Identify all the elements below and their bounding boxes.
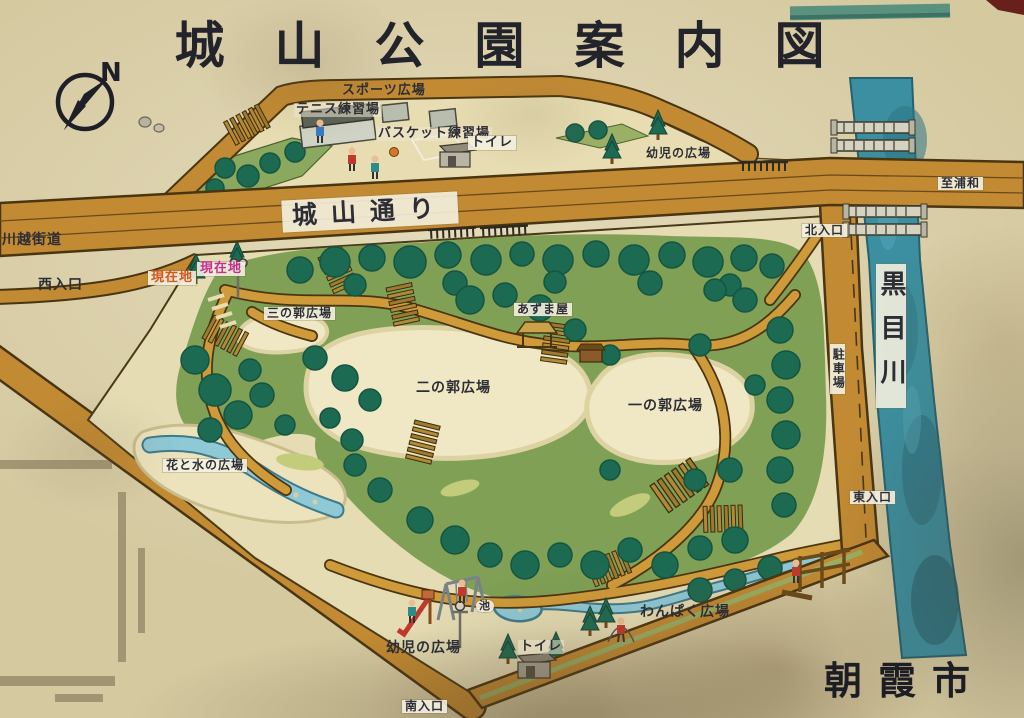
- label-tennis-practice: テニス練習場: [294, 103, 382, 117]
- faded-tape-mark: [0, 460, 112, 469]
- compass-north-label: N: [100, 58, 122, 88]
- label-current-location-1: 現在地: [148, 271, 196, 285]
- label-pond: 池: [476, 600, 494, 612]
- label-kurome-river: 黒目川: [876, 264, 906, 408]
- small-shrine: [577, 344, 605, 362]
- label-toilet-south: トイレ: [518, 640, 564, 654]
- park-guide-sign: 城山公園案内図 N スポーツ広場 テニス練習場 バスケット練習場 トイレ 幼児の…: [0, 0, 1024, 718]
- label-kawagoe-highway: 川越街道: [2, 233, 62, 248]
- label-azumaya: あずま屋: [514, 303, 572, 316]
- label-to-urawa: 至浦和: [938, 177, 983, 190]
- map-graphic: [0, 0, 1024, 718]
- label-toilet-north: トイレ: [468, 136, 516, 150]
- label-current-location-2: 現在地: [197, 262, 245, 276]
- label-toddlers-plaza-south: 幼児の広場: [386, 641, 461, 656]
- label-flower-water-plaza: 花と水の広場: [163, 459, 247, 472]
- faded-tape-mark: [0, 676, 115, 686]
- label-south-entrance: 南入口: [402, 700, 447, 713]
- label-wanpaku-plaza: わんぱく広場: [640, 605, 730, 620]
- label-sports-plaza: スポーツ広場: [342, 84, 426, 98]
- faded-tape-mark: [138, 548, 145, 633]
- city-name: 朝霞市: [824, 650, 986, 705]
- label-third-bailey: 三の郭広場: [264, 307, 335, 320]
- faded-tape-mark: [118, 492, 126, 662]
- sign-title: 城山公園案内図: [150, 6, 875, 78]
- label-second-bailey: 二の郭広場: [416, 381, 491, 396]
- label-first-bailey: 一の郭広場: [628, 399, 703, 414]
- pebbles: [139, 117, 164, 132]
- faded-tape-mark: [55, 694, 103, 702]
- label-west-entrance: 西入口: [38, 278, 83, 293]
- label-parking: 駐車場: [830, 344, 845, 394]
- label-east-entrance: 東入口: [850, 491, 895, 504]
- toilet-south-building: [518, 653, 556, 678]
- label-toddlers-plaza-north: 幼児の広場: [646, 147, 711, 160]
- label-north-entrance: 北入口: [802, 224, 847, 237]
